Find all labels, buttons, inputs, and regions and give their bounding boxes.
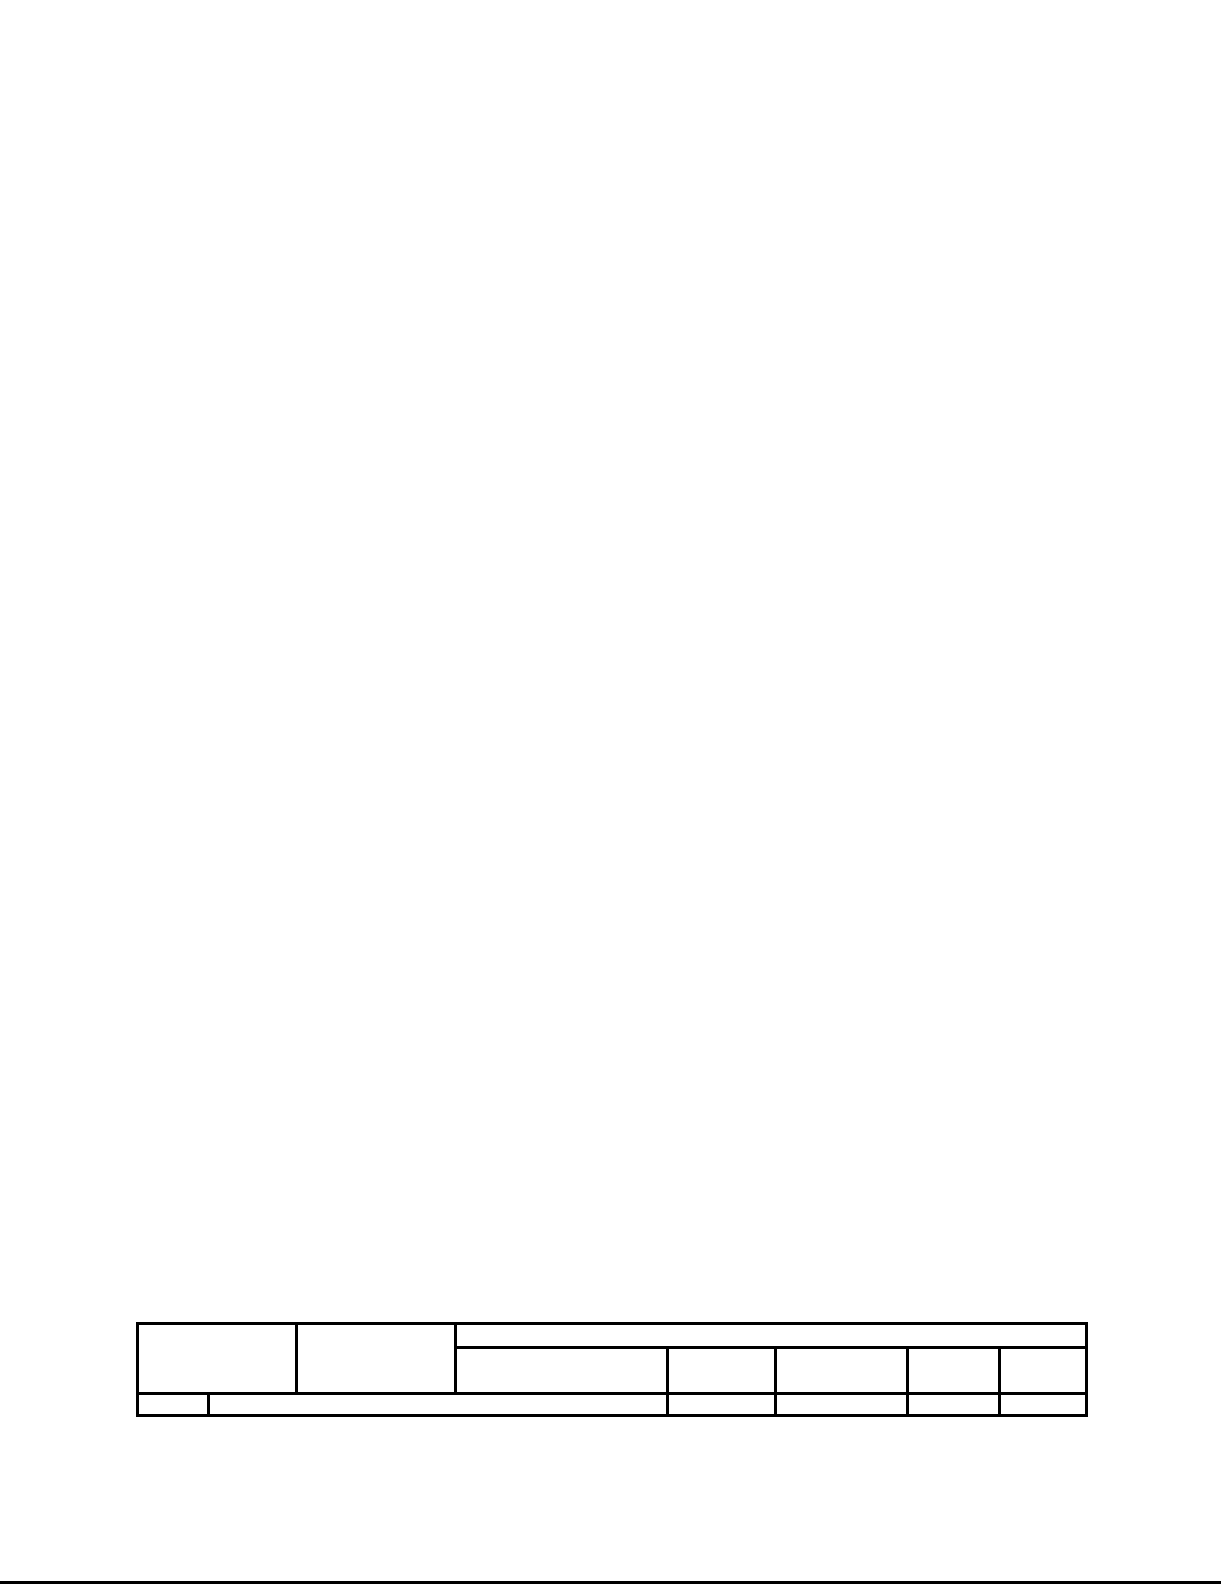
- table-data-row: [139, 1395, 1085, 1414]
- document-page: [0, 0, 1225, 1585]
- data-row-cell-5: [909, 1395, 1001, 1414]
- data-row-cell-3: [669, 1395, 777, 1414]
- header-col1-cell: [139, 1325, 298, 1392]
- group-subheader-cell-1: [457, 1349, 669, 1392]
- title-block-table: [136, 1322, 1088, 1417]
- data-row-cell-4: [777, 1395, 909, 1414]
- data-row-cell-6: [1001, 1395, 1085, 1414]
- group-subheader-cell-3: [777, 1349, 909, 1392]
- header-group-section: [457, 1325, 1085, 1392]
- table-header-band: [139, 1325, 1085, 1395]
- page-bottom-rule: [0, 1581, 1221, 1584]
- group-subheader-cell-5: [1001, 1349, 1085, 1392]
- group-subheader-cell-4: [909, 1349, 1001, 1392]
- data-row-cell-2: [210, 1395, 669, 1414]
- header-col2-cell: [298, 1325, 457, 1392]
- group-subheader-row: [457, 1349, 1085, 1392]
- group-header-cell: [457, 1325, 1085, 1349]
- data-row-cell-1: [139, 1395, 210, 1414]
- group-subheader-cell-2: [669, 1349, 777, 1392]
